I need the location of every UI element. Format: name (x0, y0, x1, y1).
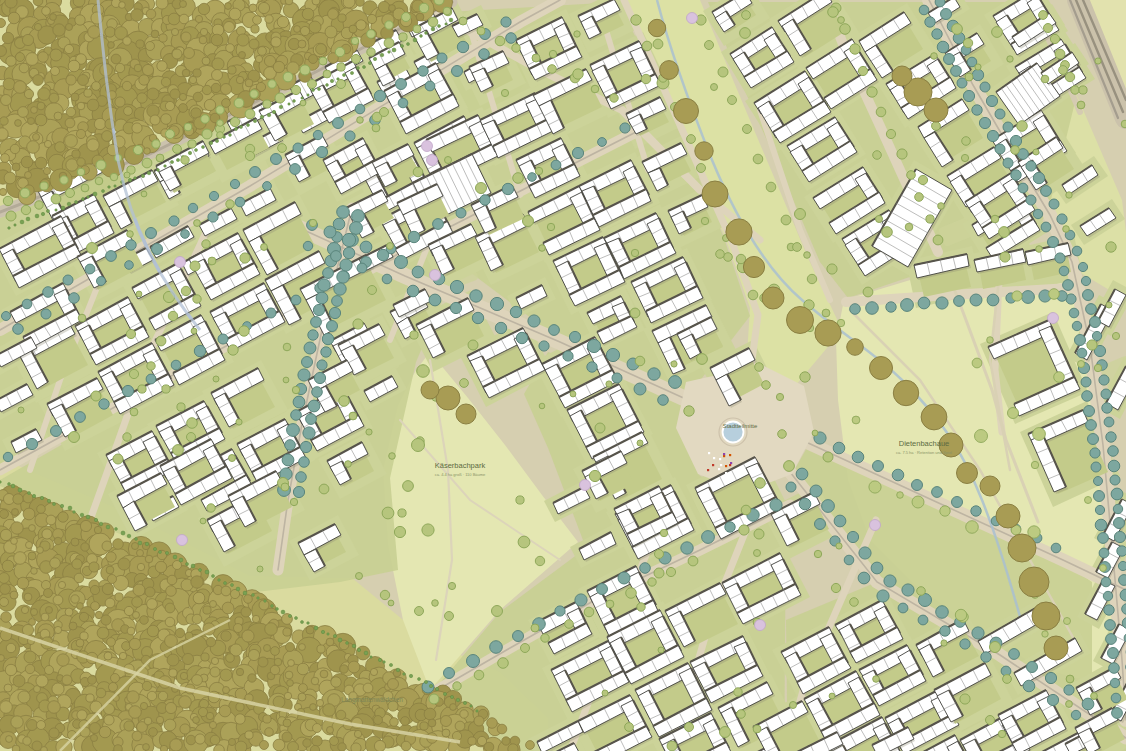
svg-text:ca. 7.5 ha · Retention und Spi: ca. 7.5 ha · Retention und Spiel (896, 450, 952, 455)
svg-text:Langmattenwäldchen: Langmattenwäldchen (341, 696, 403, 704)
svg-text:Dietenbachaue: Dietenbachaue (899, 439, 949, 448)
svg-text:ca. 4.4 ha groß · 110 Bäume: ca. 4.4 ha groß · 110 Bäume (435, 472, 486, 477)
svg-text:Stadtteilmitte: Stadtteilmitte (723, 423, 758, 429)
svg-text:Käserbachpark: Käserbachpark (435, 461, 486, 470)
